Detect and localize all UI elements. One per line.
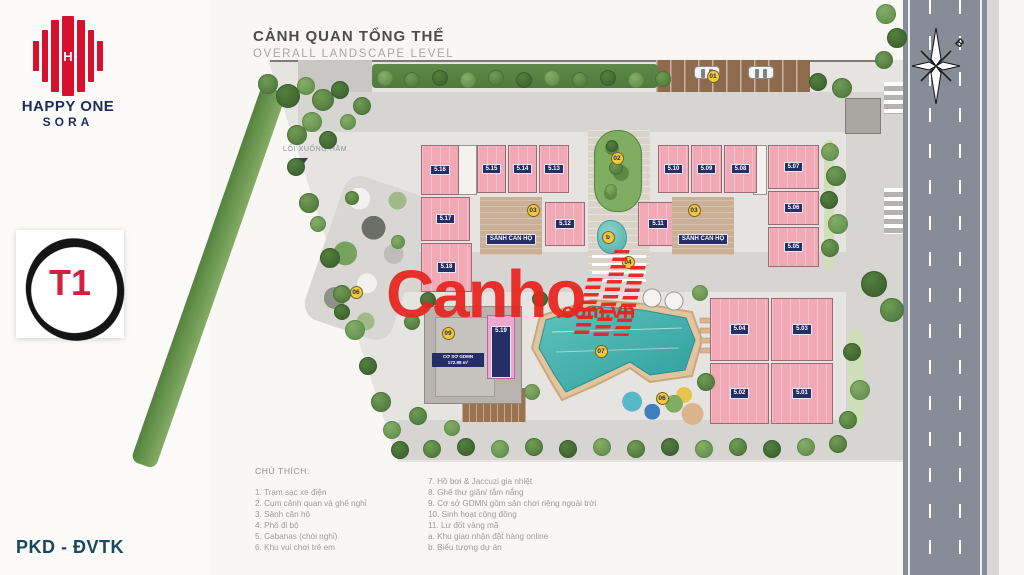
tree-icon: [524, 384, 540, 400]
tree-icon: [391, 235, 405, 249]
master-plan-slide: H HAPPY ONE SORA T1 PKD - ĐVTK CẢNH QUAN…: [0, 0, 1024, 575]
unit-chip: 5.12: [555, 219, 575, 230]
tree-icon: [606, 140, 618, 152]
dropoff-pavers: [656, 60, 810, 92]
legend-badge-07: 07: [595, 345, 608, 358]
legend-column-2: 7. Hồ bơi & Jaccuzi gia nhiệt8. Ghế thư …: [428, 476, 658, 553]
tree-icon: [839, 411, 857, 429]
tree-icon: [258, 74, 278, 94]
legend-badge-06: 06: [350, 286, 363, 299]
tree-icon: [843, 343, 861, 361]
apartment-block: 5.05: [768, 227, 819, 267]
tree-icon: [444, 420, 460, 436]
unit-chip: 5.07: [784, 162, 804, 173]
kindergarten-label-line2: 172.98 m²: [432, 360, 484, 366]
cabana-dome-icon: [665, 292, 683, 310]
tree-icon: [692, 285, 708, 301]
tree-icon: [600, 70, 616, 86]
legend-item: 1. Trạm sạc xe điện: [255, 487, 425, 498]
tree-icon: [829, 435, 847, 453]
road-edge-line: [980, 0, 982, 575]
tree-icon: [359, 357, 377, 375]
legend-column-1: 1. Trạm sạc xe điện2. Cụm cảnh quan và g…: [255, 487, 425, 553]
tree-icon: [605, 184, 617, 196]
tree-icon: [353, 97, 371, 115]
unit-chip: 5.05: [784, 242, 804, 253]
sidewalk: [987, 0, 999, 575]
tree-icon: [826, 166, 846, 186]
tree-icon: [488, 70, 504, 86]
apartment-block: 5.13: [539, 145, 569, 193]
tree-icon: [821, 239, 839, 257]
apartment-block: 5.14: [508, 145, 537, 193]
legend-item: 5. Cabanas (chòi nghỉ): [255, 531, 425, 542]
tree-icon: [661, 438, 679, 456]
tree-icon: [383, 421, 401, 439]
tree-icon: [828, 214, 848, 234]
car-icon: [748, 66, 774, 79]
tree-icon: [320, 248, 340, 268]
legend-item: 2. Cụm cảnh quan và ghế nghỉ: [255, 498, 425, 509]
car-windshield: [763, 69, 767, 78]
unit-chip: 5.15: [482, 164, 502, 175]
apartment-block: 5.07: [768, 145, 819, 189]
tree-icon: [544, 70, 560, 86]
tree-icon: [404, 72, 420, 88]
tree-icon: [850, 380, 870, 400]
legend-item: 9. Cơ sở GDMN gồm sân chơi riêng ngoài t…: [428, 498, 658, 509]
logo-h-glyph: H: [63, 49, 72, 64]
car-windshield: [701, 69, 705, 78]
brand-subname: SORA: [8, 115, 128, 129]
apartment-block: 5.10: [658, 145, 689, 193]
legend-item: 6. Khu vui chơi trẻ em: [255, 542, 425, 553]
legend-badge-b: b: [602, 231, 615, 244]
legend-item: 8. Ghế thư giãn/ tắm nắng: [428, 487, 658, 498]
tree-icon: [297, 77, 315, 95]
basement-ramp-label: LỐI XUỐNG HẦM: [283, 146, 347, 153]
legend-badge-03: 03: [688, 204, 701, 217]
legend-item: 11. Lư đốt vàng mã: [428, 520, 658, 531]
unit-chip: 5.06: [784, 203, 804, 214]
apartment-block: 5.17: [421, 197, 470, 241]
tree-icon: [432, 70, 448, 86]
legend-badge-06: 06: [656, 392, 669, 405]
unit-chip: 5.10: [664, 164, 684, 175]
apartment-block: 5.02: [710, 363, 769, 424]
tree-icon: [832, 78, 852, 98]
page-subtitle: OVERALL LANDSCAPE LEVEL: [253, 48, 454, 60]
unit-chip: 5.01: [792, 388, 812, 399]
tree-icon: [627, 440, 645, 458]
watermark-text: Canho: [386, 256, 584, 333]
legend-title: CHÚ THÍCH:: [255, 466, 310, 476]
tree-icon: [333, 285, 351, 303]
tree-icon: [491, 440, 509, 458]
lobby-block: SẢNH CĂN HỘ: [672, 197, 734, 255]
tree-icon: [876, 4, 896, 24]
apartment-block: 5.03: [771, 298, 833, 361]
tree-icon: [371, 392, 391, 412]
footer-label: PKD - ĐVTK: [16, 537, 124, 558]
tree-icon: [797, 438, 815, 456]
legend-badge-02: 02: [611, 152, 624, 165]
tree-icon: [729, 438, 747, 456]
tree-icon: [628, 72, 644, 88]
tree-icon: [287, 158, 305, 176]
apartment-block: 5.08: [724, 145, 757, 193]
tree-icon: [525, 438, 543, 456]
apartment-block: 5.15: [477, 145, 506, 193]
lobby-chip: SẢNH CĂN HỘ: [678, 234, 728, 245]
legend-item: 7. Hồ bơi & Jaccuzi gia nhiệt: [428, 476, 658, 487]
tree-icon: [875, 51, 893, 69]
legend-item: a. Khu giao nhận đặt hàng online: [428, 531, 658, 542]
tree-icon: [340, 114, 356, 130]
tower-badge-label: T1: [16, 262, 124, 304]
brand-name: HAPPY ONE: [8, 98, 128, 115]
tree-icon: [887, 28, 907, 48]
tree-icon: [331, 81, 349, 99]
unit-chip: 5.13: [544, 164, 564, 175]
unit-chip: 5.02: [730, 388, 750, 399]
tree-icon: [409, 407, 427, 425]
apartment-block: 5.01: [771, 363, 833, 424]
page-title: CẢNH QUAN TỔNG THỂ: [253, 28, 444, 45]
left-panel: H HAPPY ONE SORA T1 PKD - ĐVTK: [0, 0, 210, 575]
tree-icon: [423, 440, 441, 458]
unit-chip: 5.19: [491, 326, 511, 378]
tree-icon: [697, 373, 715, 391]
apartment-block: 5.09: [691, 145, 722, 193]
compass-rose-icon: B: [910, 26, 974, 110]
tree-icon: [287, 125, 307, 145]
tree-icon: [299, 193, 319, 213]
legend-badge-01: 01: [707, 70, 720, 83]
tree-icon: [457, 438, 475, 456]
tree-icon: [880, 298, 904, 322]
unit-chip: 5.04: [730, 324, 750, 335]
tree-icon: [391, 441, 409, 459]
unit-chip: 5.11: [648, 219, 667, 230]
legend-item: 3. Sảnh căn hộ: [255, 509, 425, 520]
unit-chip: 5.16: [430, 165, 450, 176]
tree-icon: [345, 320, 365, 340]
legend-item: 10. Sinh hoạt cộng đồng: [428, 509, 658, 520]
tree-icon: [763, 440, 781, 458]
tree-icon: [334, 304, 350, 320]
tree-icon: [809, 73, 827, 91]
unit-chip: 5.17: [436, 214, 456, 225]
tree-icon: [572, 72, 588, 88]
tree-icon: [821, 143, 839, 161]
kindergarten-label: CƠ SỞ GDMN 172.98 m²: [432, 353, 484, 367]
north-label: B: [952, 36, 966, 50]
tree-icon: [345, 191, 359, 205]
gate-house: [845, 98, 881, 134]
tree-icon: [655, 71, 671, 87]
internal-road-top: [298, 92, 906, 132]
unit-chip: 5.03: [792, 324, 812, 335]
legend-item: 4. Phố đi bộ: [255, 520, 425, 531]
legend-item: b. Biểu tượng dự án: [428, 542, 658, 553]
tree-icon: [695, 440, 713, 458]
cabana-dome-icon: [643, 289, 661, 307]
building-core: [457, 145, 477, 195]
apartment-block: 5.06: [768, 191, 819, 225]
tree-icon: [310, 216, 326, 232]
apartment-block: 5.16: [421, 145, 459, 195]
lobby-chip: SẢNH CĂN HỘ: [486, 234, 536, 245]
tree-icon: [861, 271, 887, 297]
tree-icon: [559, 440, 577, 458]
tree-icon: [820, 191, 838, 209]
apartment-block: 5.04: [710, 298, 769, 361]
tree-icon: [377, 70, 393, 86]
legend-badge-03: 03: [527, 204, 540, 217]
tower-badge: T1: [16, 230, 124, 338]
car-windshield: [755, 69, 759, 78]
tree-icon: [460, 72, 476, 88]
watermark-suffix: .com.vn: [556, 300, 635, 324]
tree-icon: [593, 438, 611, 456]
unit-chip: 5.14: [513, 164, 533, 175]
tree-icon: [319, 131, 337, 149]
happy-one-logo-icon: H: [30, 16, 106, 96]
tree-icon: [516, 72, 532, 88]
apartment-block: 5.12: [545, 202, 585, 246]
unit-chip: 5.08: [731, 164, 751, 175]
unit-chip: 5.09: [697, 164, 717, 175]
